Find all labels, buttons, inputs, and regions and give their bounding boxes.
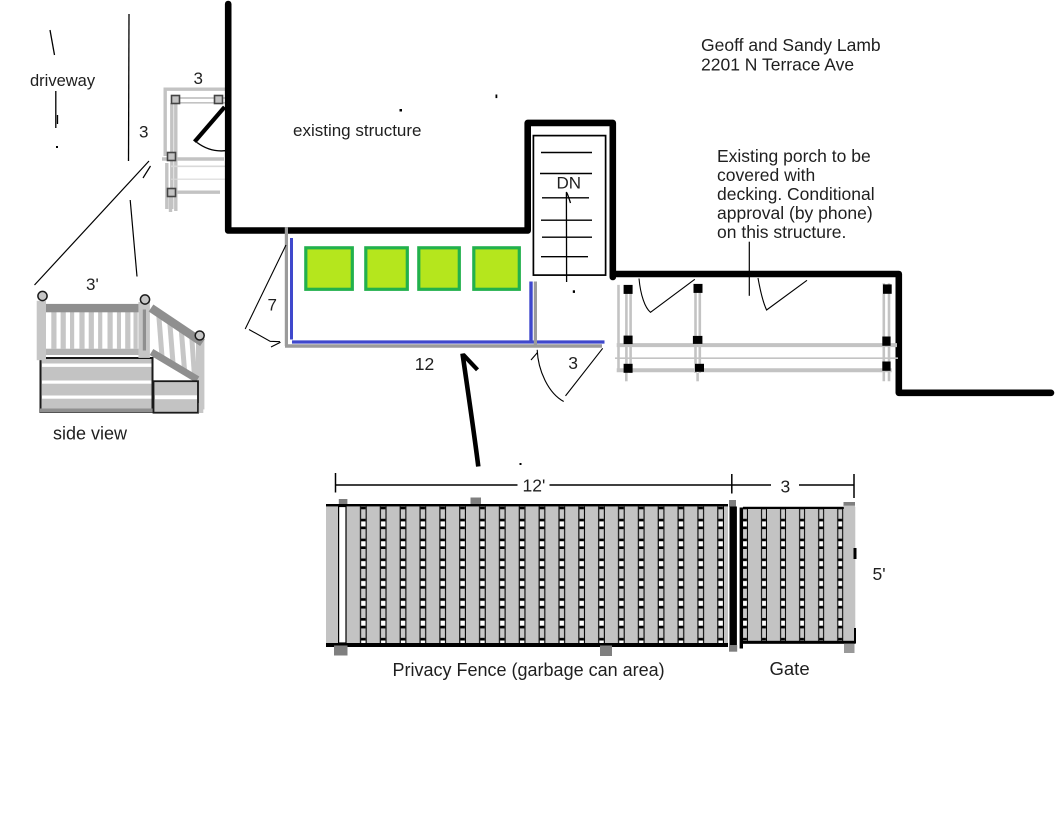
svg-text:approval (by phone): approval (by phone)	[717, 203, 873, 223]
svg-text:12: 12	[415, 354, 434, 374]
svg-text:2201 N Terrace Ave: 2201 N Terrace Ave	[701, 55, 854, 75]
svg-text:existing structure: existing structure	[293, 121, 422, 140]
svg-text:3: 3	[139, 123, 148, 142]
svg-text:Geoff and Sandy Lamb: Geoff and Sandy Lamb	[701, 35, 881, 55]
svg-text:3': 3'	[86, 275, 99, 294]
svg-text:12': 12'	[523, 476, 546, 496]
svg-text:Privacy Fence (garbage can are: Privacy Fence (garbage can area)	[393, 660, 665, 680]
svg-text:3: 3	[781, 477, 791, 497]
svg-text:on this structure.: on this structure.	[717, 222, 846, 242]
svg-text:Existing porch to be: Existing porch to be	[717, 146, 871, 166]
svg-text:7: 7	[268, 296, 277, 315]
svg-text:covered with: covered with	[717, 165, 815, 185]
svg-text:decking. Conditional: decking. Conditional	[717, 184, 875, 204]
svg-text:side view: side view	[53, 424, 128, 444]
svg-text:DN: DN	[557, 174, 582, 193]
svg-text:3: 3	[568, 353, 578, 373]
svg-text:driveway: driveway	[30, 72, 96, 90]
svg-text:5': 5'	[873, 564, 886, 584]
svg-text:Gate: Gate	[770, 658, 810, 679]
svg-text:3: 3	[194, 69, 203, 88]
